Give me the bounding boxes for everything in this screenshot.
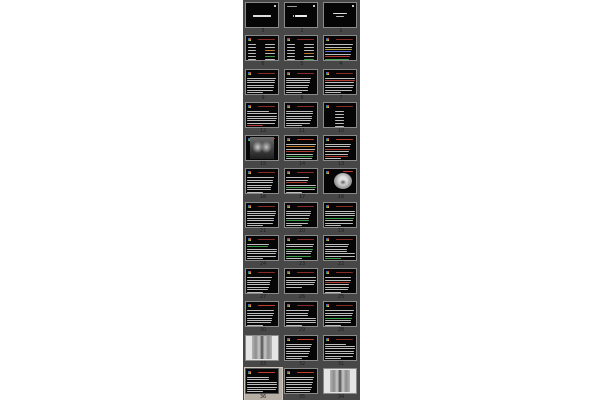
- slide-text-line: [286, 325, 301, 326]
- slide-cell: 36: [245, 368, 282, 400]
- slide-text-line: [325, 92, 340, 93]
- slide-text-line: [335, 123, 345, 124]
- slide-text-line: [295, 15, 308, 17]
- slide-number[interactable]: 32: [284, 361, 320, 368]
- slide-thumbnail-5[interactable]: [284, 35, 318, 61]
- slide-text-line: [247, 113, 276, 114]
- slide-cell: 33: [245, 335, 282, 368]
- slide-logo-icon: [326, 72, 329, 75]
- slide-text-line: [286, 118, 311, 119]
- slide-text-line: [286, 249, 312, 250]
- slide-text-line: [335, 111, 345, 112]
- slide-text-line: [325, 292, 340, 293]
- slide-number[interactable]: 36: [245, 394, 281, 400]
- slide-text-line: [247, 249, 276, 250]
- slide-text-line: [286, 113, 313, 114]
- slide-text-line: [265, 44, 276, 45]
- slide-cell: 24: [245, 235, 282, 268]
- slide-thumbnail-12[interactable]: [245, 102, 279, 128]
- slide-cell: 22: [323, 235, 360, 268]
- slide-text-line: [286, 211, 311, 212]
- slide-cell: 21: [245, 202, 282, 235]
- slide-text-line: [325, 277, 351, 278]
- slide-number[interactable]: 6: [245, 61, 281, 68]
- slide-cell: 1: [323, 2, 360, 35]
- spine-xray-image: [330, 370, 350, 393]
- slide-text-line: [297, 73, 314, 74]
- slide-cell: 30: [245, 301, 282, 334]
- slide-logo-icon: [248, 271, 251, 274]
- slide-text-line: [247, 78, 276, 79]
- slide-thumbnail-22[interactable]: [323, 235, 357, 261]
- slide-text-line: [335, 120, 345, 121]
- slide-text-line: [286, 125, 301, 126]
- slide-cell: 25: [323, 268, 360, 301]
- slide-text-line: [247, 389, 276, 390]
- slide-text-line: [253, 15, 271, 17]
- slide-number[interactable]: 8: [284, 95, 320, 102]
- slide-cell: 23: [284, 235, 321, 268]
- slide-text-line: [247, 384, 276, 385]
- slide-thumbnail-7[interactable]: [323, 69, 357, 95]
- slide-text-line: [325, 284, 349, 285]
- slide-text-line: [325, 356, 353, 357]
- slide-number[interactable]: 30: [245, 327, 281, 334]
- slide-logo-icon: [326, 138, 329, 141]
- slide-text-line: [287, 59, 295, 60]
- slide-text-line: [247, 225, 262, 226]
- slide-cell: 10: [323, 102, 360, 135]
- slide-text-line: [286, 256, 310, 257]
- slide-text-line: [247, 111, 268, 112]
- slide-text-line: [247, 87, 273, 88]
- slide-thumbnail-1[interactable]: [323, 2, 357, 28]
- slide-text-line: [286, 120, 311, 121]
- slide-cell: 13: [323, 135, 360, 168]
- slide-text-line: [286, 389, 311, 390]
- slide-number[interactable]: 9: [245, 95, 281, 102]
- slide-thumbnail-21[interactable]: [245, 202, 279, 228]
- slide-thumbnail-17[interactable]: [284, 168, 318, 194]
- slide-number[interactable]: 14: [284, 161, 320, 168]
- slide-logo-icon: [287, 38, 290, 41]
- slide-text-line: [325, 220, 353, 221]
- slide-thumbnail-27[interactable]: [245, 268, 279, 294]
- slide-text-line: [247, 310, 274, 311]
- spine-xray-image: [252, 336, 272, 359]
- slide-number[interactable]: 27: [245, 294, 281, 301]
- slide-text-line: [286, 187, 315, 188]
- slide-cell: 18: [245, 168, 282, 201]
- slide-number[interactable]: 22: [323, 261, 359, 268]
- slide-text-line: [248, 53, 256, 54]
- slide-number[interactable]: 7: [323, 95, 359, 102]
- slide-number[interactable]: 17: [284, 194, 320, 201]
- slide-text-line: [325, 80, 354, 81]
- slide-text-line: [325, 256, 354, 257]
- slide-text-line: [336, 73, 353, 74]
- slide-thumbnail-9[interactable]: [245, 69, 279, 95]
- slide-text-line: [325, 54, 350, 55]
- slide-number[interactable]: 33: [245, 361, 281, 368]
- slide-number[interactable]: 28: [323, 327, 359, 334]
- slide-text-line: [247, 253, 276, 254]
- slide-text-line: [286, 284, 314, 285]
- slide-text-line: [325, 282, 350, 283]
- slide-text-line: [247, 320, 271, 321]
- corner-logo-icon: [352, 5, 354, 7]
- slide-text-line: [325, 156, 347, 157]
- slide-text-line: [286, 189, 315, 190]
- slide-text-line: [297, 106, 314, 107]
- slide-text-line: [325, 253, 354, 254]
- slide-text-line: [333, 13, 347, 14]
- slide-text-line: [286, 218, 309, 219]
- slide-text-line: [325, 158, 340, 159]
- slide-text-line: [247, 213, 275, 214]
- slide-text-line: [247, 256, 275, 257]
- slide-text-line: [248, 50, 256, 51]
- slide-text-line: [286, 348, 310, 349]
- slide-logo-icon: [287, 238, 290, 241]
- slide-number[interactable]: 18: [245, 194, 281, 201]
- slide-text-line: [335, 126, 345, 127]
- slide-text-line: [286, 156, 313, 157]
- slide-text-line: [297, 239, 314, 240]
- slide-logo-icon: [287, 72, 290, 75]
- slide-logo-icon: [326, 38, 329, 41]
- slide-text-line: [248, 47, 256, 48]
- slide-text-line: [247, 215, 275, 216]
- slide-text-line: [286, 379, 313, 380]
- slide-number[interactable]: 21: [245, 228, 281, 235]
- slide-text-line: [325, 310, 353, 311]
- slide-thumbnail-2[interactable]: [284, 2, 318, 28]
- slide-cell: 6: [245, 35, 282, 68]
- slide-text-line: [287, 44, 295, 45]
- slide-text-line: [247, 177, 274, 178]
- slide-text-line: [247, 377, 269, 378]
- slide-thumbnail-14[interactable]: [284, 135, 318, 161]
- slide-number[interactable]: 1: [323, 28, 359, 35]
- slide-text-line: [335, 117, 345, 118]
- slide-text-line: [247, 85, 274, 86]
- slide-text-line: [247, 251, 276, 252]
- slide-thumbnail-24[interactable]: [245, 235, 279, 261]
- slide-cell: 14: [284, 135, 321, 168]
- slide-text-line: [247, 292, 262, 293]
- slide-logo-icon: [287, 171, 290, 174]
- slide-text-line: [325, 49, 352, 50]
- slide-text-line: [325, 258, 340, 259]
- slide-logo-icon: [248, 371, 251, 374]
- slide-logo-icon: [248, 205, 251, 208]
- slide-text-line: [286, 246, 313, 247]
- slide-logo-icon: [326, 171, 329, 174]
- slide-thumbnail-33[interactable]: [245, 335, 279, 361]
- slide-logo-icon: [326, 338, 329, 341]
- slide-text-line: [247, 185, 272, 186]
- slide-logo-icon: [287, 304, 290, 307]
- slide-text-line: [325, 313, 353, 314]
- slide-text-line: [325, 246, 348, 247]
- slide-number[interactable]: 5: [284, 61, 320, 68]
- slide-text-line: [247, 387, 276, 388]
- slide-cell: 5: [284, 35, 321, 68]
- slide-text-line: [247, 284, 269, 285]
- slide-text-line: [247, 382, 276, 383]
- slide-text-line: [247, 287, 269, 288]
- slide-text-line: [304, 47, 315, 48]
- slide-number[interactable]: 13: [323, 161, 359, 168]
- corner-logo-icon: [313, 5, 315, 7]
- slide-logo-icon: [326, 105, 329, 108]
- slide-text-line: [258, 172, 275, 173]
- slide-text-line: [336, 206, 353, 207]
- slide-logo-icon: [248, 304, 251, 307]
- slide-text-line: [258, 106, 275, 107]
- ct-scan-image: [334, 173, 352, 189]
- slide-number[interactable]: 25: [323, 294, 359, 301]
- slide-cell: 2: [284, 2, 321, 35]
- slide-cell: 11: [284, 102, 321, 135]
- slide-text-line: [325, 287, 348, 288]
- slide-text-line: [325, 225, 340, 226]
- slide-number[interactable]: 10: [323, 128, 359, 135]
- slide-thumbnail-25[interactable]: [323, 268, 357, 294]
- slide-cell: 8: [284, 69, 321, 102]
- slide-number[interactable]: 23: [284, 261, 320, 268]
- slide-number[interactable]: 26: [284, 294, 320, 301]
- slide-number[interactable]: 35: [284, 394, 320, 400]
- slide-thumbnail-6[interactable]: [245, 35, 279, 61]
- slide-thumbnail-35[interactable]: [284, 368, 318, 394]
- slide-text-line: [325, 154, 348, 155]
- slide-text-line: [325, 59, 349, 60]
- slide-text-line: [325, 218, 354, 219]
- slide-cell: 35: [284, 368, 321, 400]
- slide-text-line: [325, 144, 351, 145]
- slide-number[interactable]: 20: [284, 228, 320, 235]
- slide-cell: 19: [323, 202, 360, 235]
- slide-text-line: [325, 90, 352, 91]
- slide-text-line: [325, 289, 348, 290]
- slide-text-line: [286, 123, 310, 124]
- slide-thumbnail-4[interactable]: [323, 35, 357, 61]
- slide-thumbnail-32[interactable]: [284, 335, 318, 361]
- slide-text-line: [247, 211, 276, 212]
- slide-text-line: [247, 246, 268, 247]
- slide-text-line: [286, 377, 314, 378]
- slide-text-line: [335, 114, 345, 115]
- slide-text-line: [247, 379, 268, 380]
- slide-text-line: [286, 318, 315, 319]
- slide-thumbnail-19[interactable]: [323, 202, 357, 228]
- slide-text-line: [247, 189, 270, 190]
- slide-text-line: [265, 50, 276, 51]
- slide-thumbnail-28[interactable]: [323, 301, 357, 327]
- slide-text-line: [247, 391, 262, 392]
- slide-thumbnail-23[interactable]: [284, 235, 318, 261]
- slide-logo-icon: [287, 338, 290, 341]
- slide-logo-icon: [248, 105, 251, 108]
- slide-text-line: [286, 287, 301, 288]
- slide-text-line: [336, 239, 353, 240]
- slide-thumbnail-29[interactable]: [284, 301, 318, 327]
- slide-thumbnail-13[interactable]: [323, 135, 357, 161]
- slide-text-line: [287, 56, 295, 57]
- slide-text-line: [286, 282, 315, 283]
- slide-text-line: [286, 313, 308, 314]
- slide-text-line: [286, 258, 301, 259]
- slide-cell: 9: [245, 69, 282, 102]
- slide-text-line: [336, 39, 353, 40]
- slide-text-line: [286, 384, 312, 385]
- slide-cell: 17: [284, 168, 321, 201]
- slide-number[interactable]: 16: [323, 194, 359, 201]
- slide-number[interactable]: 3: [245, 28, 281, 35]
- slide-text-line: [286, 180, 308, 181]
- slide-thumbnail-3[interactable]: [245, 2, 279, 28]
- slide-text-line: [287, 47, 295, 48]
- slide-text-line: [325, 82, 354, 83]
- slide-text-line: [247, 118, 276, 119]
- slide-number[interactable]: 29: [284, 327, 320, 334]
- slide-number[interactable]: 4: [323, 61, 359, 68]
- slide-text-line: [258, 206, 275, 207]
- slide-text-line: [304, 56, 315, 57]
- slide-text-line: [325, 348, 354, 349]
- slide-text-line: [286, 356, 308, 357]
- slide-text-line: [325, 325, 340, 326]
- slide-text-line: [336, 106, 353, 107]
- slide-text-line: [286, 144, 315, 145]
- slide-text-line: [258, 39, 275, 40]
- slide-logo-icon: [326, 238, 329, 241]
- slide-text-line: [286, 146, 315, 147]
- slide-text-line: [286, 158, 312, 159]
- slide-text-line: [286, 82, 309, 83]
- slide-text-line: [286, 154, 313, 155]
- slide-text-line: [325, 85, 353, 86]
- slide-text-line: [247, 223, 273, 224]
- slide-text-line: [325, 344, 346, 345]
- slide-text-line: [325, 249, 347, 250]
- slide-text-line: [265, 53, 276, 54]
- slide-thumbnail-16[interactable]: [323, 168, 357, 194]
- slide-text-line: [247, 187, 271, 188]
- slide-text-line: [336, 16, 345, 17]
- slide-text-line: [325, 44, 353, 45]
- slide-text-line: [247, 322, 271, 323]
- slide-number[interactable]: 11: [284, 128, 320, 135]
- slide-text-line: [286, 277, 315, 278]
- slide-text-line: [286, 251, 312, 252]
- slide-thumbnail-18[interactable]: [245, 168, 279, 194]
- slide-thumbnail-10[interactable]: [323, 102, 357, 128]
- slide-thumbnail-30[interactable]: [245, 301, 279, 327]
- slide-logo-icon: [287, 138, 290, 141]
- slide-thumbnail-15[interactable]: [245, 135, 279, 161]
- slide-text-line: [325, 51, 351, 52]
- slide-cell: 31: [323, 335, 360, 368]
- slide-thumbnail-8[interactable]: [284, 69, 318, 95]
- slide-number[interactable]: 15: [245, 161, 281, 168]
- slide-text-line: [325, 56, 350, 57]
- slide-text-line: [325, 353, 353, 354]
- slide-text-line: [258, 305, 275, 306]
- slide-text-line: [247, 90, 273, 91]
- slide-text-line: [286, 310, 309, 311]
- slide-thumbnail-20[interactable]: [284, 202, 318, 228]
- slide-text-line: [247, 244, 269, 245]
- slide-text-line: [286, 213, 310, 214]
- slide-text-line: [287, 50, 295, 51]
- slide-thumbnail-11[interactable]: [284, 102, 318, 128]
- slide-text-line: [325, 346, 354, 347]
- slide-text-line: [343, 171, 353, 172]
- slide-number[interactable]: 34: [323, 394, 359, 400]
- slide-cell: 28: [323, 301, 360, 334]
- slide-text-line: [325, 87, 353, 88]
- slide-text-line: [247, 218, 274, 219]
- slide-text-line: [247, 80, 275, 81]
- slide-logo-icon: [248, 171, 251, 174]
- slide-text-line: [286, 182, 307, 183]
- slide-text-line: [286, 382, 313, 383]
- slide-text-line: [247, 180, 273, 181]
- slide-text-line: [304, 53, 315, 54]
- slide-text-line: [286, 220, 308, 221]
- slide-number[interactable]: 19: [323, 228, 359, 235]
- slide-thumbnail-26[interactable]: [284, 268, 318, 294]
- slide-text-line: [286, 80, 310, 81]
- slide-number[interactable]: 12: [245, 128, 281, 135]
- slide-text-line: [304, 59, 315, 60]
- slide-thumbnail-34[interactable]: [323, 368, 357, 394]
- slide-text-line: [286, 87, 308, 88]
- slide-text-line: [248, 44, 256, 45]
- slide-text-line: [286, 78, 311, 79]
- slide-logo-icon: [248, 72, 251, 75]
- slide-number[interactable]: 31: [323, 361, 359, 368]
- slide-logo-icon: [326, 304, 329, 307]
- slide-text-line: [286, 225, 301, 226]
- slide-cell: 26: [284, 268, 321, 301]
- slide-text-line: [286, 320, 315, 321]
- slide-text-line: [286, 351, 309, 352]
- slide-text-line: [247, 192, 262, 193]
- slide-cell: 12: [245, 102, 282, 135]
- slide-text-line: [336, 339, 353, 340]
- slide-number[interactable]: 24: [245, 261, 281, 268]
- slide-text-line: [247, 289, 268, 290]
- slide-thumbnail-31[interactable]: [323, 335, 357, 361]
- slide-text-line: [258, 372, 275, 373]
- slide-text-line: [325, 320, 351, 321]
- slide-text-line: [258, 272, 275, 273]
- slide-text-line: [325, 149, 349, 150]
- slide-text-line: [258, 73, 275, 74]
- slide-text-line: [286, 92, 301, 93]
- slide-text-line: [247, 282, 270, 283]
- corner-logo-icon: [274, 5, 276, 7]
- slide-thumbnail-36[interactable]: [245, 368, 279, 394]
- slide-text-line: [286, 192, 301, 193]
- slide-text-line: [286, 344, 311, 345]
- slide-number[interactable]: 2: [284, 28, 320, 35]
- slide-sorter-panel: 3216549871211101514131817162120192423222…: [243, 0, 360, 400]
